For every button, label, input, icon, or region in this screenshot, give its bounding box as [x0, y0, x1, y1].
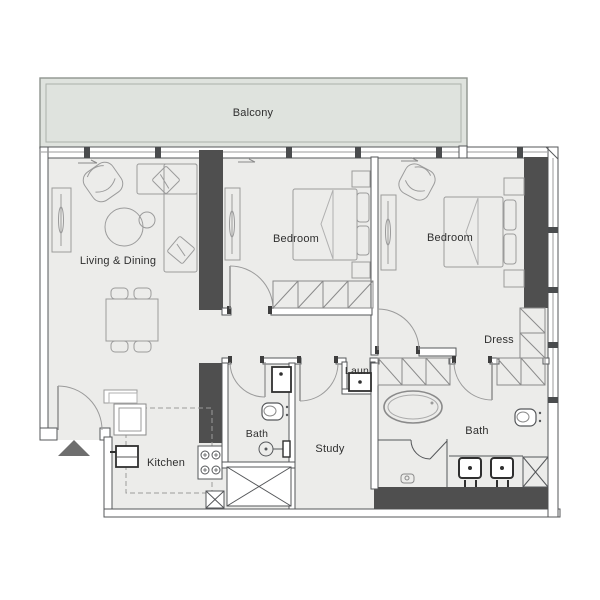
bath1-sink-icon	[272, 367, 291, 392]
stove-icon	[198, 446, 222, 479]
floor-plan: Balcony Living & Dining Bedroom Bedroom …	[0, 0, 600, 600]
bedroom2-label: Bedroom	[427, 232, 473, 244]
kitchen-label: Kitchen	[147, 457, 185, 469]
living-dining-label: Living & Dining	[80, 255, 156, 267]
study-label: Study	[315, 443, 344, 455]
floor-plan-drawing	[0, 0, 600, 600]
bath1-label: Bath	[246, 428, 268, 440]
kitchen-shaft-icon	[206, 491, 224, 508]
bath2-shower-icon	[523, 457, 548, 487]
bedroom1-label: Bedroom	[273, 233, 319, 245]
bath1-shaft-icon	[227, 467, 291, 506]
balcony-label: Balcony	[233, 107, 274, 119]
laundry-label: Laun	[345, 365, 369, 377]
kitchen-counter	[104, 390, 137, 403]
fridge-icon	[114, 404, 146, 435]
bath2-label: Bath	[465, 425, 488, 437]
entry-arrow-icon	[58, 440, 90, 456]
dress-label: Dress	[484, 334, 514, 346]
